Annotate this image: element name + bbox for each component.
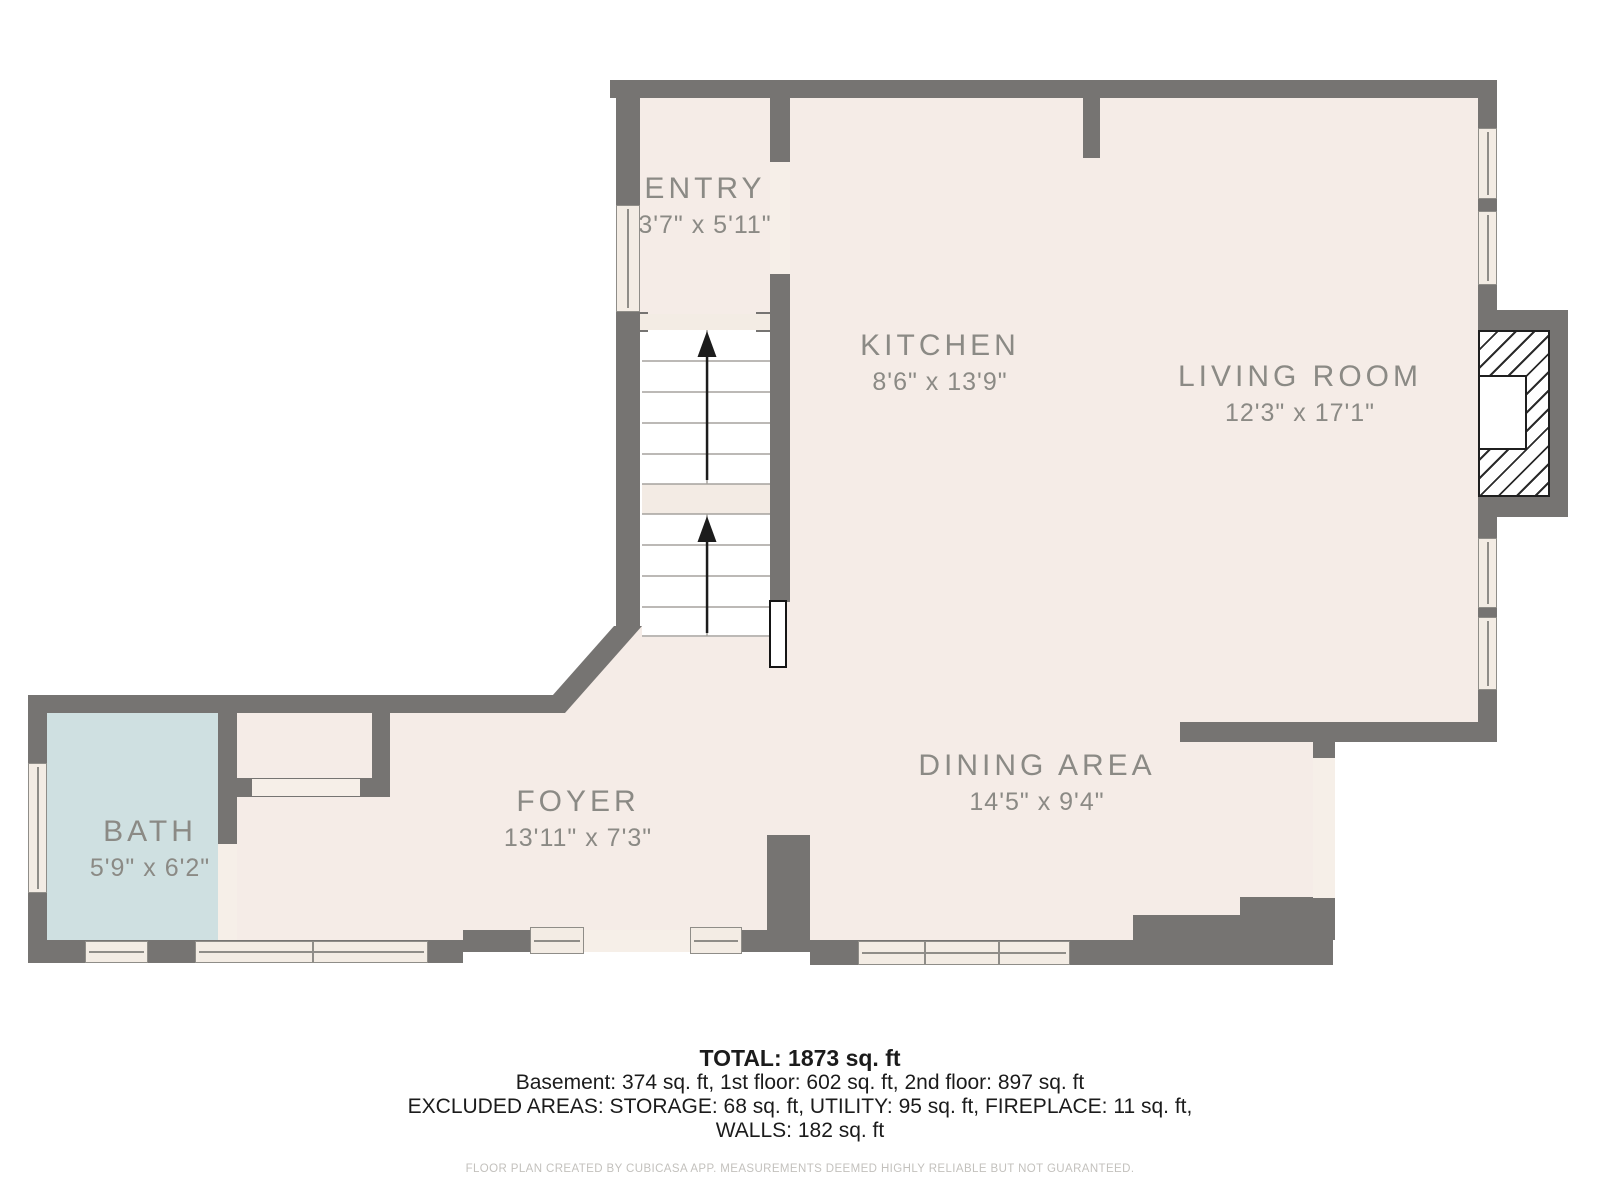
wall-top — [610, 80, 1497, 98]
closet-opening — [252, 779, 360, 796]
room-label-entry: ENTRY 3'7" x 5'11" — [638, 174, 771, 238]
dining-right-opening — [1313, 758, 1335, 898]
room-name: BATH — [90, 817, 210, 847]
dining-triple-window — [858, 941, 1070, 965]
room-label-bath: BATH 5'9" x 6'2" — [90, 817, 210, 881]
bath-left-window — [28, 763, 47, 893]
living-right-window-2 — [1478, 211, 1497, 285]
wall-foyer-dining-pillar — [767, 835, 810, 952]
room-dimensions: 5'9" x 6'2" — [90, 856, 210, 881]
living-right-window-1 — [1478, 128, 1497, 199]
foyer-small-window-2 — [690, 927, 742, 954]
door-leaf — [769, 600, 787, 668]
room-name: LIVING ROOM — [1178, 362, 1422, 392]
total-area: TOTAL: 1873 sq. ft — [0, 1046, 1600, 1071]
floor-under-stairs — [556, 626, 790, 716]
fireplace-firebox — [1478, 375, 1527, 450]
room-name: ENTRY — [638, 174, 771, 204]
floor-plan: ENTRY 3'7" x 5'11" KITCHEN 8'6" x 13'9" … — [0, 0, 1600, 1200]
room-label-living-room: LIVING ROOM 12'3" x 17'1" — [1178, 362, 1422, 426]
living-right-window-4 — [1478, 617, 1497, 690]
wall-bottom-d-corner — [1240, 897, 1333, 965]
bath-door-opening — [218, 844, 237, 940]
room-label-foyer: FOYER 13'11" x 7'3" — [504, 787, 652, 851]
wall-living-bottom — [1180, 722, 1497, 742]
staircase — [642, 330, 772, 637]
walls-area: WALLS: 182 sq. ft — [0, 1119, 1600, 1143]
foyer-bottom-window — [195, 941, 428, 963]
room-dimensions: 14'5" x 9'4" — [918, 790, 1155, 815]
wall-bath-foyer-top — [28, 695, 563, 713]
room-name: KITCHEN — [860, 331, 1020, 361]
wall-dining-right-stub — [1313, 742, 1335, 758]
entry-kitchen-opening — [770, 162, 790, 274]
excluded-areas: EXCLUDED AREAS: STORAGE: 68 sq. ft, UTIL… — [0, 1095, 1600, 1119]
room-dimensions: 3'7" x 5'11" — [638, 213, 771, 238]
room-dimensions: 8'6" x 13'9" — [860, 370, 1020, 395]
room-label-dining-area: DINING AREA 14'5" x 9'4" — [918, 751, 1155, 815]
entry-stairs-threshold — [640, 314, 770, 330]
wall-closet-right-block — [372, 713, 390, 797]
wall-left-upper — [616, 80, 640, 628]
living-right-window-3 — [1478, 538, 1497, 608]
room-label-kitchen: KITCHEN 8'6" x 13'9" — [860, 331, 1020, 395]
room-name: FOYER — [504, 787, 652, 817]
foyer-small-window-1 — [530, 927, 584, 954]
room-name: DINING AREA — [918, 751, 1155, 781]
floor-areas: Basement: 374 sq. ft, 1st floor: 602 sq.… — [0, 1071, 1600, 1095]
bath-bottom-window — [85, 941, 148, 963]
room-dimensions: 12'3" x 17'1" — [1178, 401, 1422, 426]
room-dimensions: 13'11" x 7'3" — [504, 826, 652, 851]
disclaimer: FLOOR PLAN CREATED BY CUBICASA APP. MEAS… — [0, 1163, 1600, 1175]
stairs-up-arrow-icon — [698, 331, 717, 633]
entry-left-window — [616, 205, 640, 312]
wall-bath-right — [218, 713, 237, 844]
wall-kitchen-living-stub — [1083, 98, 1100, 158]
patio-opening — [584, 930, 690, 952]
area-summary: TOTAL: 1873 sq. ft Basement: 374 sq. ft,… — [0, 1046, 1600, 1175]
